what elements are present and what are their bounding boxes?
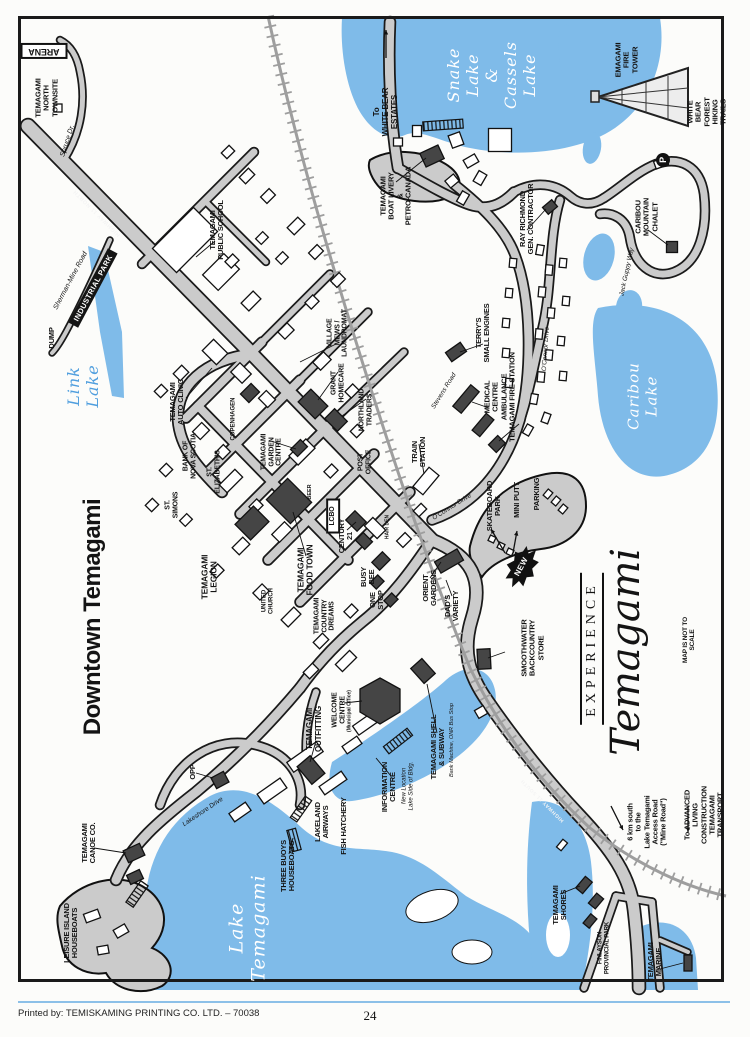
label-shell-note: Bank Machine, ONR Bus Stop: [449, 703, 455, 777]
label-boat-livery: TEMAGAMI BOAT LIVERY & PETRO-CANADA: [380, 167, 413, 225]
label-canoe-co: TEMAGAMI CANOE CO.: [81, 823, 98, 864]
road-lakeshore: Lakeshore Drive: [181, 796, 224, 828]
label-dump: DUMP: [48, 327, 56, 348]
label-parking-p: P: [656, 153, 670, 167]
label-mini-putt: MINI PUTT: [513, 482, 521, 518]
label-medical-fire: MEDICAL CENTRE AMBULANCE TEMAGAMI FIRE S…: [484, 352, 517, 442]
label-leisure-island: LEISURE ISLAND HOUSEBOATS: [63, 903, 80, 963]
road-jack-guppy-way: Jack Guppy Way: [618, 247, 635, 296]
label-auto-clinic: TEMAGAMI AUTO CLINIC: [169, 379, 186, 425]
label-lake-temagami: Lake Temagami: [226, 874, 271, 981]
label-beer: BEER: [307, 484, 313, 499]
label-garden-centre: TEMAGAMI GARDEN CENTRE: [260, 434, 283, 471]
label-parking: PARKING: [533, 478, 541, 511]
footer-divider: [18, 1001, 730, 1003]
label-village-mews: VILLAGE MEWS / LAUNDROMAT: [326, 309, 349, 357]
label-caribou-lake: Caribou Lake: [625, 362, 660, 430]
label-public-school: TEMAGAMI PUBLIC SCHOOL: [209, 200, 226, 259]
label-copenhagen: COPENHAGEN: [231, 397, 238, 440]
label-opp: OPP: [189, 764, 197, 779]
label-snake-cassels-lake: Snake Lake & Cassels Lake: [445, 41, 539, 109]
label-new: NEW: [513, 556, 530, 578]
label-white-bear-estates: To WHITE BEAR ESTATES: [373, 88, 399, 137]
label-link-lake: Link Lake: [65, 364, 103, 407]
label-one-stop: ONE STOP: [369, 590, 386, 610]
road-highway-11-north: HIGHWAY 11 NORTH: [72, 188, 121, 237]
label-orient-gardens: ORIENT GARDENS: [422, 570, 439, 606]
road-spruce-dr: Spruce Dr.: [59, 124, 77, 158]
label-six-km-south: 6 km south to the Lake Temagami Access R…: [626, 795, 667, 848]
label-finlayson-park: FINLAYSON PROVINCIAL PARK: [597, 922, 610, 974]
label-arena: ARENA: [20, 43, 67, 59]
road-highway-11-south: HIGHWAY 11 SOUTH: [520, 777, 565, 822]
map-title: Downtown Temagami: [80, 499, 106, 735]
label-caribou-chalet: CARIBOU MOUNTAIN CHALET: [635, 198, 660, 236]
label-information-note: New Location Lake Side of Bldg.: [401, 762, 414, 811]
label-outfitting: TEMAGAMI OUTFITTING: [306, 706, 324, 752]
label-dads-variety: DAD'S VARIETY: [444, 591, 461, 622]
road-oconnor-crescent: O'Connor Drive: [541, 327, 551, 372]
label-welcome-note: (Municipal Office): [347, 690, 353, 732]
label-smoothwater: SMOOTHWATER BACKCOUNTRY STORE: [521, 619, 546, 676]
label-fish-hatchery: FISH HATCHERY: [340, 797, 348, 854]
label-legion: TEMAGAMI LEGION: [201, 555, 220, 600]
label-information-centre: INFORMATION CENTRE: [381, 762, 398, 812]
label-lakeland-airways: LAKELAND AIRWAYS: [314, 802, 331, 842]
label-food-town: TEMAGAMI FOOD TOWN: [297, 545, 316, 596]
label-north-townsite: TEMAGAMI NORTH TOWNSITE: [35, 78, 60, 117]
label-welcome-centre: WELCOME CENTRE: [331, 692, 346, 727]
label-temagami-shores: TEMAGAMI SHORES: [552, 885, 569, 924]
label-grant-homecare: GRANT HOMECARE: [330, 363, 345, 402]
map-labels-layer: Downtown TemagamiARENATEMAGAMI NORTH TOW…: [0, 0, 750, 1037]
label-hair-den: HAIR DEN: [385, 515, 391, 539]
logo-temagami: Temagami: [606, 548, 646, 756]
road-stevens: Stevens Road: [430, 372, 458, 410]
label-temagami-marine: TEMAGAMI MARINE: [647, 942, 664, 981]
label-fire-tower: EMAGAMI FIRE TOWER: [615, 43, 640, 78]
label-united-church: UNITED CHURCH: [261, 588, 274, 614]
label-century-21: CENTURY 21: [338, 519, 355, 554]
label-three-buoys: THREE BUOYS HOUSEBOATS: [280, 840, 297, 892]
logo-experience: EXPERIENCE: [580, 573, 604, 725]
label-bank-nova-scotia: BANK OF NOVA SCOTIA: [182, 433, 197, 479]
label-post-office: POST OFFICE: [357, 450, 372, 474]
label-industrial-park: INDUSTRIAL PARK: [68, 248, 117, 327]
label-northland-traders: NORTHLAND TRADERS: [358, 389, 373, 432]
label-advanced-living: To ADVANCED LIVING CONSTRUCTION TEMAGAMI…: [683, 786, 724, 844]
label-shell-subway: TEMAGAMI SHELL & SUBWAY: [430, 715, 447, 780]
label-not-to-scale: MAP IS NOT TO SCALE: [682, 610, 696, 671]
label-white-bear-forest: WHITE BEAR FOREST HIKING TRAILS: [686, 91, 727, 134]
label-country-dreams: TEMAGAMI COUNTRY DREAMS: [313, 598, 336, 635]
label-st-simons: ST. SIMONS: [164, 492, 179, 518]
label-ray-richmond: RAY RICHMOND GEN. CONTRACTOR: [519, 184, 536, 255]
label-busy-bee: BUSY BEE: [360, 567, 377, 587]
map-page: Downtown TemagamiARENATEMAGAMI NORTH TOW…: [0, 0, 750, 1037]
road-oconnor-main: O'Connor Drive: [431, 492, 473, 522]
page-number: 24: [358, 1008, 382, 1024]
label-train-station: TRAIN STATION: [411, 437, 428, 467]
label-st-elizabeths: ST. ELIZABETH'S: [206, 450, 221, 493]
printed-by-credit: Printed by: TEMISKAMING PRINTING CO. LTD…: [18, 1008, 259, 1019]
label-skateboard-park: SKATEBOARD PARK: [486, 481, 503, 531]
